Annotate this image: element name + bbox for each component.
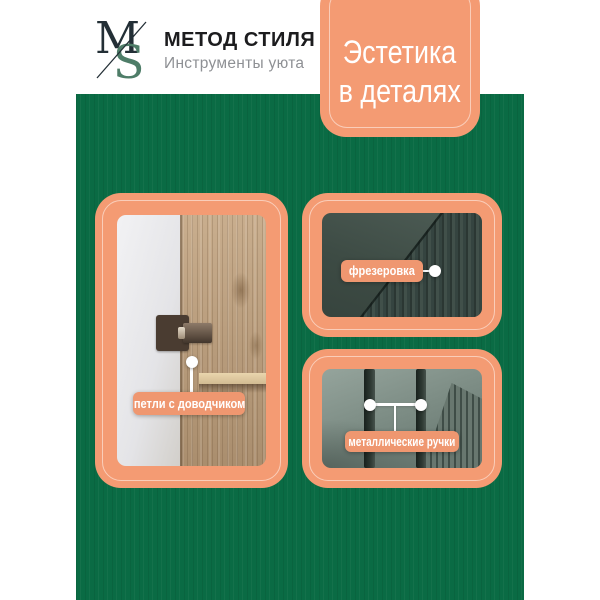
callout-line <box>394 405 397 432</box>
hinge-pin <box>178 327 185 340</box>
feature-label-milling: фрезеровка <box>341 260 423 282</box>
green-board: петли с доводчиком фрезеровка <box>76 94 524 600</box>
handles-photo: металлические ручки <box>322 369 482 468</box>
feature-card-handles: металлические ручки <box>302 349 502 488</box>
callout-dot <box>429 265 441 277</box>
promo-card: M S МЕТОД СТИЛЯ Инструменты уюта Эстетик… <box>0 0 600 600</box>
metal-handle-left <box>364 369 374 468</box>
brand-name: МЕТОД СТИЛЯ <box>164 29 315 52</box>
milling-photo: фрезеровка <box>322 213 482 317</box>
headline-line-1: Эстетика <box>343 33 456 72</box>
callout-dot <box>364 399 376 411</box>
metal-handle-right <box>416 369 426 468</box>
feature-label-text: петли с доводчиком <box>134 396 245 411</box>
callout-line <box>190 366 193 392</box>
feature-card-milling: фрезеровка <box>302 193 502 337</box>
wood-shelf <box>199 373 266 384</box>
fluted-corner-texture <box>322 369 482 468</box>
brand-logo: M S МЕТОД СТИЛЯ Инструменты уюта <box>94 16 315 80</box>
feature-label-handles: металлические ручки <box>345 431 459 452</box>
brand-monogram-icon: M S <box>94 16 152 80</box>
callout-dot <box>186 356 198 368</box>
callout-dot <box>415 399 427 411</box>
headline-line-2: в деталях <box>339 72 461 111</box>
feature-card-hinges: петли с доводчиком <box>95 193 288 488</box>
hinge-arm <box>183 323 212 342</box>
hinge-photo: петли с доводчиком <box>117 215 266 466</box>
feature-label-text: металлические ручки <box>349 435 456 449</box>
hinge-graphic <box>156 313 213 353</box>
feature-label-text: фрезеровка <box>349 263 415 278</box>
feature-label-hinges: петли с доводчиком <box>133 392 245 415</box>
headline-badge: Эстетика в деталях <box>320 0 480 137</box>
brand-text: МЕТОД СТИЛЯ Инструменты уюта <box>164 23 315 73</box>
brand-tagline: Инструменты уюта <box>164 55 315 73</box>
